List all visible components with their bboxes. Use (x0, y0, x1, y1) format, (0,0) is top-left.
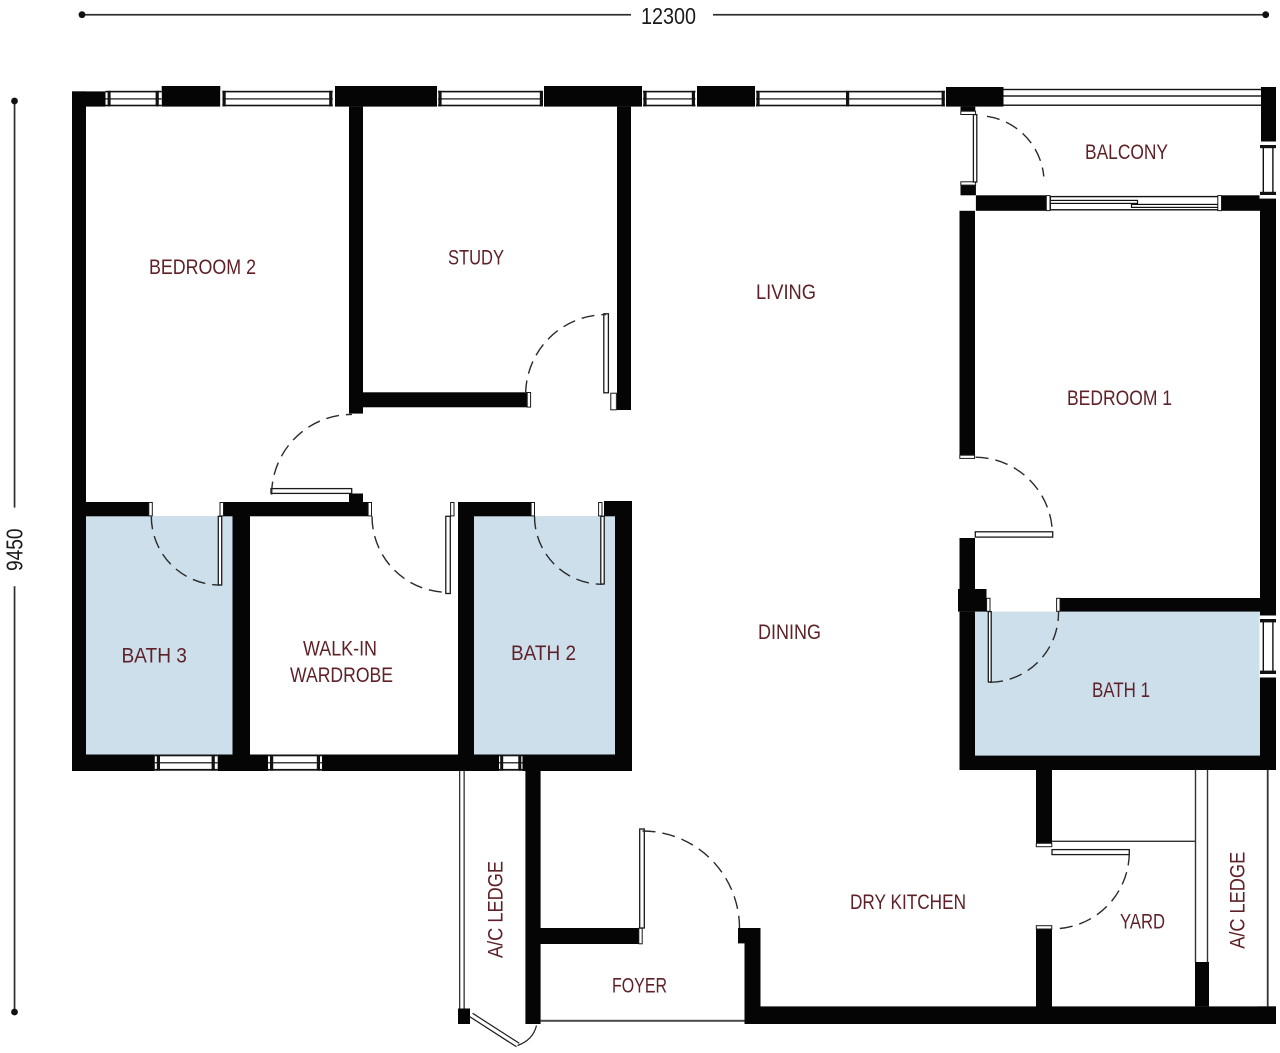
svg-text:9450: 9450 (2, 529, 28, 572)
svg-text:BEDROOM 2: BEDROOM 2 (149, 255, 256, 279)
svg-text:BALCONY: BALCONY (1085, 140, 1168, 164)
svg-text:FOYER: FOYER (612, 974, 667, 998)
svg-text:A/C LEDGE: A/C LEDGE (484, 861, 508, 958)
svg-text:BATH 3: BATH 3 (121, 643, 187, 667)
svg-text:STUDY: STUDY (448, 246, 504, 270)
svg-text:DINING: DINING (758, 620, 821, 644)
svg-text:12300: 12300 (641, 3, 696, 29)
svg-text:BATH 2: BATH 2 (511, 641, 576, 665)
svg-text:YARD: YARD (1120, 910, 1165, 934)
svg-text:BEDROOM 1: BEDROOM 1 (1067, 386, 1172, 410)
svg-text:LIVING: LIVING (756, 280, 816, 304)
svg-text:A/C LEDGE: A/C LEDGE (1226, 852, 1250, 949)
svg-text:WARDROBE: WARDROBE (290, 663, 393, 687)
svg-text:WALK-IN: WALK-IN (303, 637, 377, 661)
svg-text:DRY KITCHEN: DRY KITCHEN (850, 890, 966, 914)
svg-text:BATH 1: BATH 1 (1092, 678, 1150, 702)
